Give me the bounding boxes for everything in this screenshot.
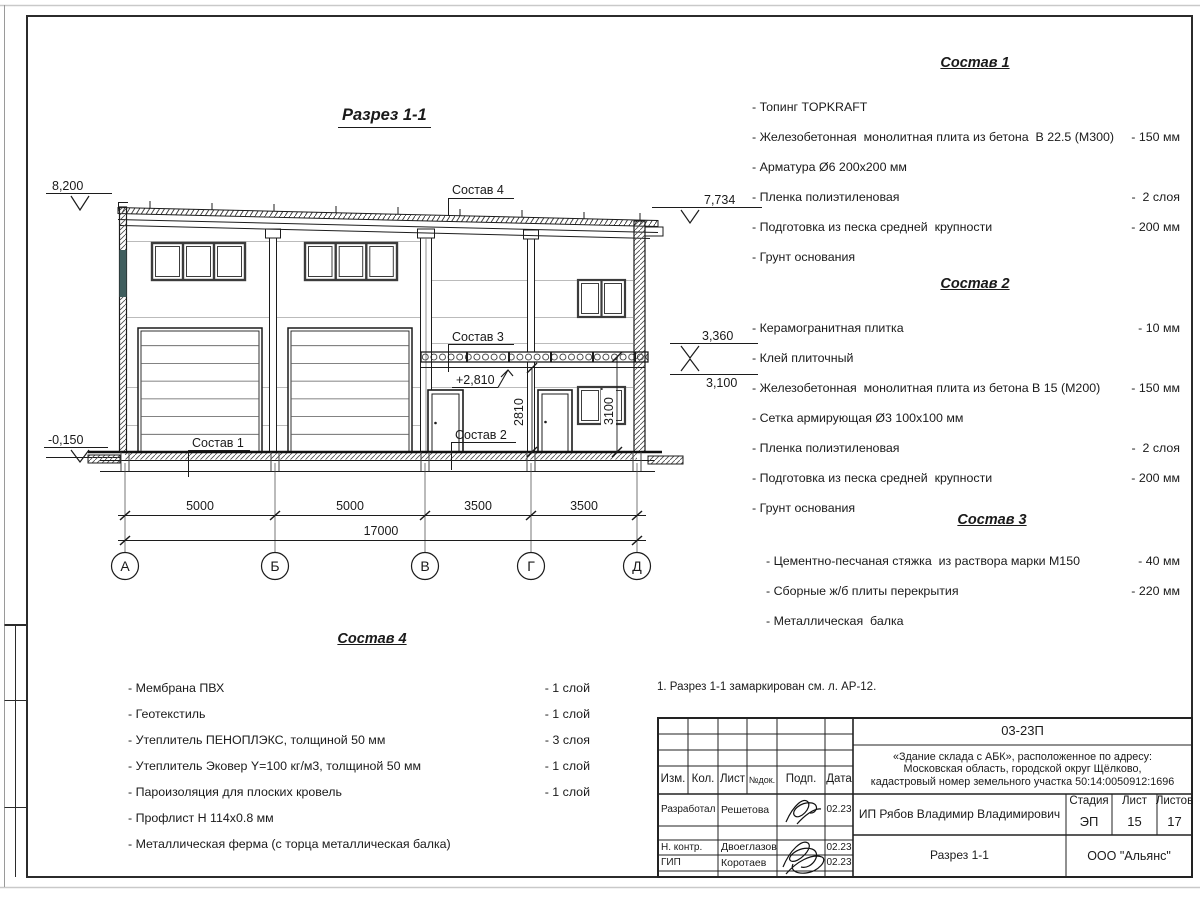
- column-b: [270, 238, 277, 452]
- lbl-sostav4: Состав 4: [452, 183, 504, 197]
- axis-v: В: [420, 558, 429, 574]
- lbl-sostav3: Состав 3: [452, 330, 504, 344]
- list-item: - Утеплитель ПЕНОПЛЭКС, толщиной 50 мм- …: [128, 727, 590, 753]
- list-item: - Профлист Н 114х0.8 мм: [128, 805, 590, 831]
- axis-d: Д: [632, 558, 642, 574]
- sheet-number: 15: [1112, 810, 1157, 835]
- col-header-list: Лист: [718, 766, 747, 794]
- elev-3100: 3,100: [706, 376, 737, 390]
- date-developer: 02.23: [825, 794, 853, 826]
- lbl-sostav1: Состав 1: [192, 436, 244, 450]
- sheet-label: Лист: [1112, 794, 1157, 810]
- sheets-total: 17: [1157, 810, 1192, 835]
- col-header-izm: Изм.: [658, 766, 688, 794]
- list-item: - Утеплитель Эковер Y=100 кг/м3, толщино…: [128, 753, 590, 779]
- elev-2810: +2,810: [456, 373, 495, 387]
- axis-a: А: [120, 558, 130, 574]
- composition-list-2: Состав 2 - Керамогранитная плитка- 10 мм…: [752, 276, 1180, 523]
- dimension-chains: 5000 5000 3500 3500 17000: [118, 463, 646, 553]
- doc-name: Разрез 1-1: [853, 835, 1066, 877]
- elev-m0150: -0,150: [48, 433, 83, 447]
- dim-3500-2: 3500: [570, 499, 598, 513]
- client-name: ИП Рябов Владимир Владимирович: [853, 794, 1066, 835]
- object-description: «Здание склада с АБК», расположенное по …: [853, 745, 1192, 794]
- company-name: ООО "Альянс": [1066, 835, 1192, 877]
- column-g-upper: [528, 239, 535, 352]
- ground-foundation: [46, 452, 683, 472]
- stage-value: ЭП: [1066, 810, 1112, 835]
- elev-7734: 7,734: [704, 193, 735, 207]
- col-header-ndok: №док.: [747, 766, 777, 794]
- wall-dark-insert: [120, 250, 127, 297]
- role-developer: Разработал: [658, 794, 718, 826]
- section-title: Разрез 1-1: [338, 106, 431, 128]
- list-item: - Сборные ж/б плиты перекрытия- 220 мм: [760, 576, 1180, 606]
- list-item: - Пленка полиэтиленовая- 2 слоя: [752, 433, 1180, 463]
- axis-bubbles: А Б В Г Д: [112, 553, 651, 580]
- composition-1-title: Состав 1: [752, 55, 1180, 74]
- roof: [118, 201, 663, 239]
- lbl-sostav2: Состав 2: [455, 428, 507, 442]
- list-item: - Подготовка из песка средней крупности-…: [752, 463, 1180, 493]
- list-item: - Железобетонная монолитная плита из бет…: [752, 122, 1180, 152]
- name-developer: Решетова: [718, 794, 777, 826]
- signature-1: [786, 800, 821, 824]
- dim-5000-1: 5000: [186, 499, 214, 513]
- list-item: - Мембрана ПВХ- 1 слой: [128, 675, 590, 701]
- elev-8200: 8,200: [52, 179, 83, 193]
- col-header-podp: Подп.: [777, 766, 825, 794]
- left-margin-stamp: [5, 625, 28, 877]
- role-gip: ГИП: [658, 855, 718, 871]
- list-item: - Арматура Ø6 200х200 мм: [752, 152, 1180, 182]
- role-ncontrol: Н. контр.: [658, 840, 718, 855]
- list-item: - Керамогранитная плитка- 10 мм: [752, 313, 1180, 343]
- dim-5000-2: 5000: [336, 499, 364, 513]
- list-item: - Цементно-песчаная стяжка из раствора м…: [760, 546, 1180, 576]
- list-item: - Топинг TOPKRAFT: [752, 92, 1180, 122]
- date-ncontrol: 02.23: [825, 840, 853, 855]
- drawing-sheet: { "page": { "drawing_title": "Разрез 1-1…: [0, 0, 1200, 900]
- axis-g: Г: [527, 558, 535, 574]
- list-item: - Металлическая ферма (с торца металличе…: [128, 831, 590, 857]
- sheets-label: Листов: [1157, 794, 1192, 810]
- list-item: - Подготовка из песка средней крупности-…: [752, 212, 1180, 242]
- wall-axis-a: [120, 207, 127, 452]
- composition-2-title: Состав 2: [752, 276, 1180, 295]
- dim-17000: 17000: [364, 524, 399, 538]
- date-gip: 02.23: [825, 855, 853, 871]
- composition-4-title: Состав 4: [128, 631, 590, 650]
- list-item: - Клей плиточный: [752, 343, 1180, 373]
- column-g-lower: [528, 362, 535, 452]
- list-item: - Пленка полиэтиленовая- 2 слоя: [752, 182, 1180, 212]
- list-item: - Железобетонная монолитная плита из бет…: [752, 373, 1180, 403]
- list-item: - Сетка армирующая Ø3 100х100 мм: [752, 403, 1180, 433]
- list-item: - Грунт основания: [752, 242, 1180, 272]
- col-header-data: Дата: [825, 766, 853, 794]
- signature-2: [783, 842, 824, 874]
- col-header-kol: Кол.: [688, 766, 718, 794]
- sheet-note: 1. Разрез 1-1 замаркирован см. л. АР-12.: [657, 681, 876, 693]
- dim-2810: 2810: [512, 398, 526, 426]
- name-ncontrol: Двоеглазов: [718, 840, 777, 855]
- axis-b: Б: [270, 558, 279, 574]
- wall-axis-d: [634, 221, 645, 452]
- list-item: - Пароизоляция для плоских кровель- 1 сл…: [128, 779, 590, 805]
- elev-3360: 3,360: [702, 329, 733, 343]
- composition-list-3: Состав 3 - Цементно-песчаная стяжка из р…: [760, 512, 1180, 636]
- stage-label: Стадия: [1066, 794, 1112, 810]
- name-gip: Коротаев: [718, 855, 777, 871]
- doc-code: 03-23П: [853, 718, 1192, 745]
- dim-3500-1: 3500: [464, 499, 492, 513]
- list-item: - Геотекстиль- 1 слой: [128, 701, 590, 727]
- composition-list-4: Состав 4 - Мембрана ПВХ- 1 слой - Геотек…: [128, 631, 590, 857]
- dim-3100: 3100: [602, 397, 616, 425]
- list-item: - Металлическая балка: [760, 606, 1180, 636]
- composition-3-title: Состав 3: [760, 512, 1180, 531]
- composition-list-1: Состав 1 - Топинг TOPKRAFT - Железобетон…: [752, 55, 1180, 272]
- building-section: 2810 3100 8,200 7,734 3,360 3,100 -0,150: [44, 179, 762, 580]
